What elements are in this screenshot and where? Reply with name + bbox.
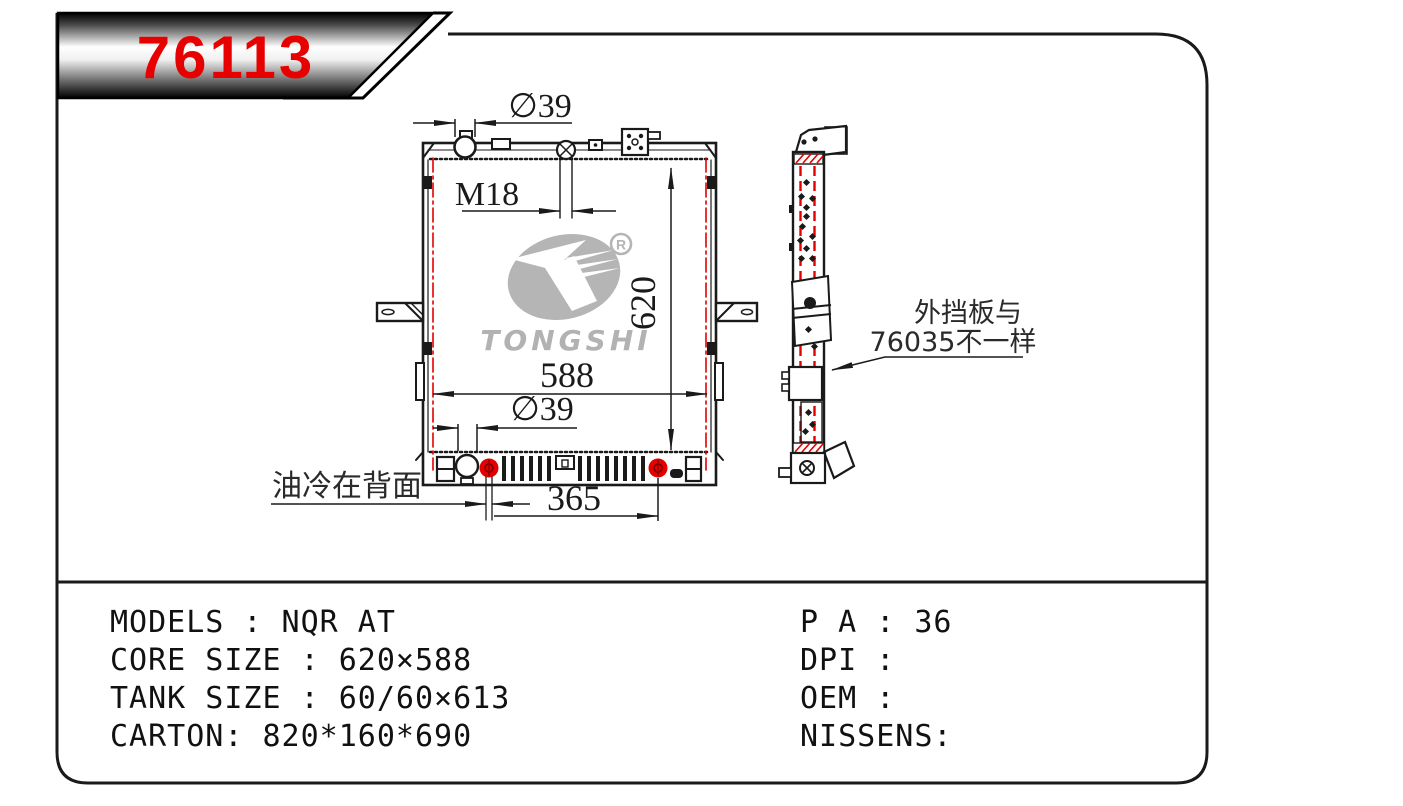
side-top-bracket-hole-2 bbox=[812, 136, 817, 141]
dim-filler-diameter-label: ∅39 bbox=[508, 88, 572, 125]
spec-tank-size: TANK SIZE : 60/60×613 bbox=[110, 681, 510, 716]
radiator-technical-drawing: 76113 bbox=[0, 0, 1403, 806]
spec-nissens: NISSENS: bbox=[800, 719, 953, 754]
right-edge-nub-upper bbox=[707, 176, 715, 189]
dim-height-label: 620 bbox=[623, 276, 663, 330]
outlet-pipe bbox=[456, 455, 478, 477]
part-number: 76113 bbox=[137, 24, 316, 91]
left-mount-bracket bbox=[377, 303, 423, 321]
baffle-note-leader bbox=[832, 357, 1023, 370]
spec-pa: P A : 36 bbox=[800, 605, 953, 640]
dim-thread-label: M18 bbox=[455, 176, 519, 213]
spec-column-right: P A : 36 DPI : OEM : NISSENS: bbox=[800, 605, 953, 754]
spec-carton: CARTON: 820*160*690 bbox=[110, 719, 472, 754]
part-number-banner: 76113 bbox=[58, 13, 450, 98]
filler-neck bbox=[455, 137, 476, 158]
radiator-side-view: 外挡板与 76035不一样 bbox=[779, 126, 1036, 483]
bottom-drain-plug bbox=[670, 469, 683, 478]
baffle-note-line1: 外挡板与 bbox=[914, 298, 1022, 329]
spec-oem: OEM : bbox=[800, 681, 895, 716]
left-edge-nub-upper bbox=[424, 176, 432, 189]
top-small-boss-hole bbox=[594, 143, 598, 147]
side-bottom-hatch-band bbox=[793, 443, 824, 453]
dim-spacing-label: 365 bbox=[547, 478, 601, 518]
spec-core-size: CORE SIZE : 620×588 bbox=[110, 643, 472, 678]
dim-outlet-diameter-label: ∅39 bbox=[510, 391, 574, 428]
spec-table: MODELS : NQR AT CORE SIZE : 620×588 TANK… bbox=[110, 605, 953, 754]
right-edge-nub-lower bbox=[707, 342, 715, 355]
left-side-tab bbox=[416, 363, 424, 400]
drawing-sheet: 76113 bbox=[0, 0, 1403, 806]
registered-mark: R bbox=[616, 237, 626, 253]
top-notch bbox=[492, 139, 510, 149]
spec-models: MODELS : NQR AT bbox=[110, 605, 396, 640]
dim-width-label: 588 bbox=[540, 355, 594, 395]
oil-cooler-fitting-right bbox=[649, 459, 668, 478]
right-side-tab bbox=[715, 363, 723, 400]
right-mount-bracket bbox=[716, 303, 757, 321]
oil-cooler-fitting-left bbox=[480, 459, 499, 478]
spec-dpi: DPI : bbox=[800, 643, 895, 678]
side-top-bracket-hole-1 bbox=[801, 139, 806, 144]
spec-column-left: MODELS : NQR AT CORE SIZE : 620×588 TANK… bbox=[110, 605, 510, 754]
side-top-hatch-band bbox=[794, 154, 823, 164]
bottom-center-mount-hole bbox=[562, 460, 568, 467]
side-upper-plate bbox=[792, 276, 831, 350]
baffle-note-line2: 76035不一样 bbox=[870, 327, 1037, 358]
note-oil-cooler: 油冷在背面 bbox=[272, 469, 422, 504]
left-edge-nub-lower bbox=[424, 342, 432, 355]
outlet-pipe-tab bbox=[461, 478, 473, 484]
side-baffle-plate bbox=[782, 367, 822, 400]
